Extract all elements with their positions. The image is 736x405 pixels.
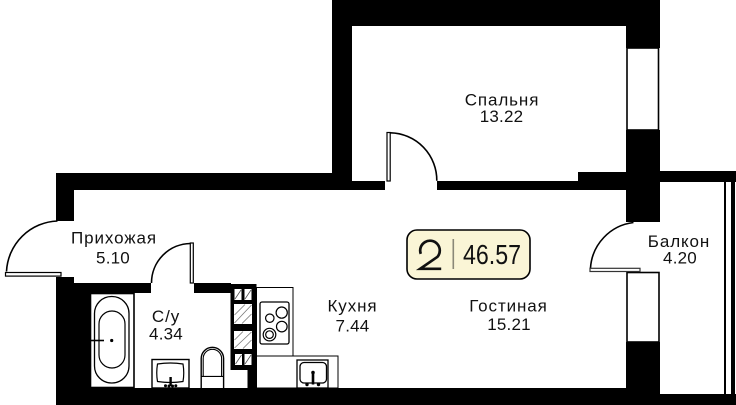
svg-text:Гостиная: Гостиная [469,297,548,316]
svg-text:4.20: 4.20 [663,249,697,268]
svg-text:13.22: 13.22 [480,107,524,126]
svg-text:4.34: 4.34 [149,325,183,344]
svg-text:46.57: 46.57 [463,239,521,270]
svg-text:Прихожая: Прихожая [71,229,157,248]
svg-text:15.21: 15.21 [487,315,531,334]
svg-text:С/у: С/у [152,307,180,326]
svg-text:Кухня: Кухня [328,297,378,316]
svg-text:5.10: 5.10 [96,249,130,268]
svg-text:7.44: 7.44 [336,317,370,336]
